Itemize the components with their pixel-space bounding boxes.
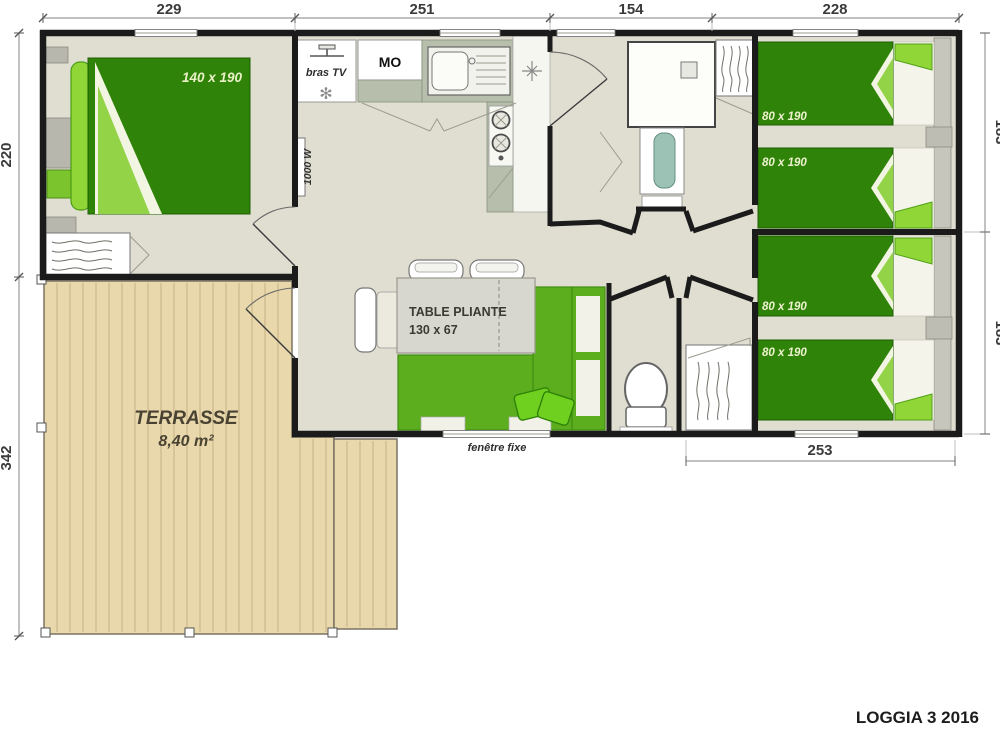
sink [428,47,510,95]
master-bed-size-label: 140 x 190 [182,70,243,85]
floor-plan-svg: TERRASSE 8,40 m² 140 x 190 bras [0,0,1000,739]
single-bed-2: 80 x 190 [758,148,934,228]
dim-top-3: 154 [618,1,644,18]
double-bed: 140 x 190 [71,58,250,214]
shelf-niche [576,360,600,416]
table-size-label: 130 x 67 [409,323,458,337]
terrace-side-deck [334,439,397,629]
microwave-label: MO [379,54,402,70]
table-label: TABLE PLIANTE [409,305,507,319]
bench [355,288,376,352]
washbasin [654,133,675,188]
terrace-label: TERRASSE [134,408,239,429]
dim-top-4: 228 [822,1,847,18]
nightstand [926,127,952,147]
bed-size-label: 80 x 190 [762,301,807,313]
counter-strip [358,80,422,102]
dim-left-lower: 342 [0,445,15,470]
nightstand [926,317,952,339]
fixed-window-label: fenêtre fixe [468,442,527,454]
single-bed-1: 80 x 190 [758,42,934,125]
dim-right-upper: 183 [992,119,1000,144]
shower-drain-icon [681,62,697,78]
hall-wardrobe [686,338,752,430]
bench-pad [377,292,399,348]
plan-title: LOGGIA 3 2016 [856,708,979,727]
single-bed-3: 80 x 190 [758,236,934,316]
stool-pad [476,263,518,272]
knob-icon [499,156,504,161]
dim-right-lower: 183 [992,320,1000,345]
vanity [640,128,684,209]
dim-left-upper: 220 [0,142,15,167]
dim-top-2: 251 [409,1,434,18]
terrace-area-label: 8,40 m² [158,433,214,450]
tv-label: bras TV [306,67,348,79]
heater-label: 1000 W [302,148,314,185]
dim-top-1: 229 [156,1,181,18]
shelf-niche [576,296,600,352]
bed-size-label: 80 x 190 [762,157,807,169]
closet-box [686,345,752,430]
toilet-tank [626,407,666,427]
seat-cushion [421,417,465,431]
bed-size-label: 80 x 190 [762,347,807,359]
single-bed-4: 80 x 190 [758,340,934,420]
dim-bottom-right: 253 [807,442,832,459]
shower [628,42,715,127]
fan-icon: ✻ [319,84,332,103]
terrace-deck [44,281,334,634]
bed-size-label: 80 x 190 [762,111,807,123]
floor-plan-page: TERRASSE 8,40 m² 140 x 190 bras [0,0,1000,739]
stool-pad [415,263,457,272]
